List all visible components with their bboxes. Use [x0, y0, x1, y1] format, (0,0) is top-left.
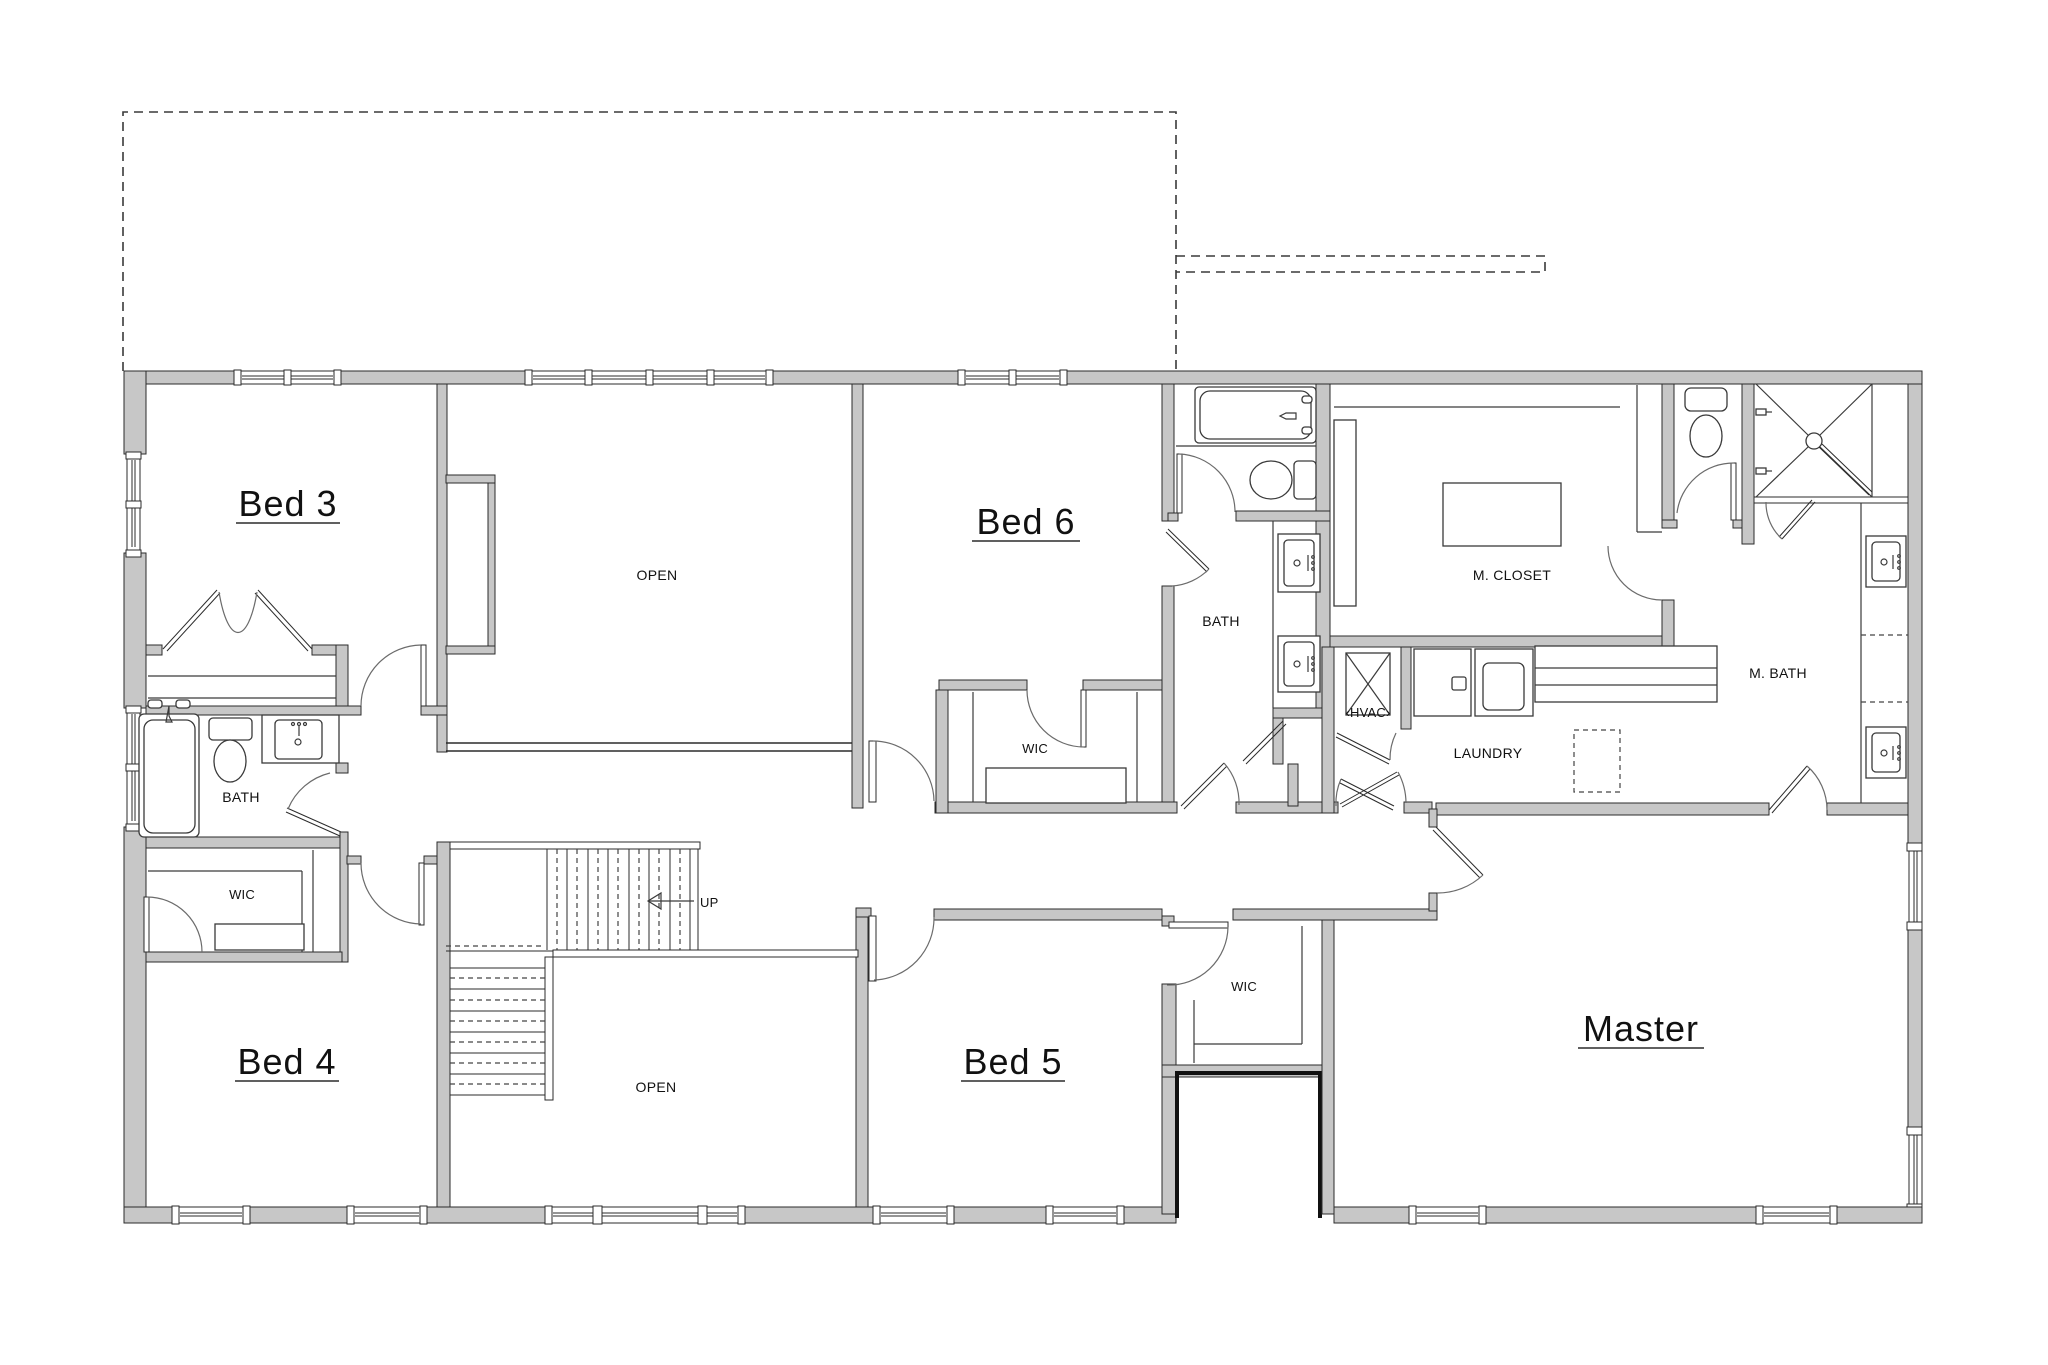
svg-text:OPEN: OPEN [637, 567, 678, 583]
svg-text:M. CLOSET: M. CLOSET [1473, 567, 1551, 583]
svg-text:Master: Master [1583, 1008, 1699, 1049]
svg-text:BATH: BATH [1202, 613, 1240, 629]
svg-text:LAUNDRY: LAUNDRY [1454, 745, 1523, 761]
svg-text:Bed 5: Bed 5 [963, 1041, 1062, 1082]
svg-text:UP: UP [700, 895, 718, 910]
svg-text:OPEN: OPEN [636, 1079, 677, 1095]
svg-text:M. BATH: M. BATH [1749, 665, 1807, 681]
svg-text:WIC: WIC [229, 887, 255, 902]
svg-text:BATH: BATH [222, 789, 260, 805]
svg-text:Bed 3: Bed 3 [238, 483, 337, 524]
svg-text:WIC: WIC [1231, 979, 1257, 994]
svg-text:WIC: WIC [1022, 741, 1048, 756]
svg-text:‹HVAC›: ‹HVAC› [1345, 705, 1390, 720]
svg-text:Bed 4: Bed 4 [237, 1041, 336, 1082]
svg-text:Bed 6: Bed 6 [976, 501, 1075, 542]
